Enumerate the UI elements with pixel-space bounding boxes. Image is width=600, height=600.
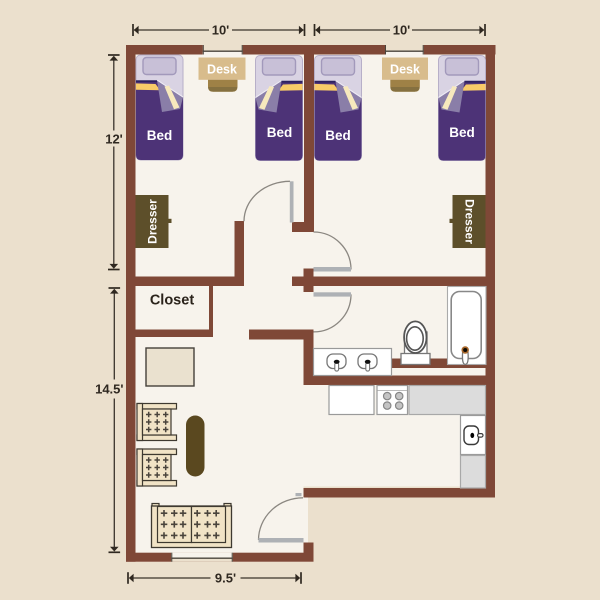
svg-text:Closet: Closet (150, 293, 194, 309)
svg-text:12': 12' (105, 131, 123, 146)
svg-text:10': 10' (212, 22, 230, 37)
svg-text:Bed: Bed (325, 128, 351, 143)
svg-text:Dresser: Dresser (462, 199, 476, 244)
svg-text:Bed: Bed (449, 125, 475, 140)
svg-text:14.5': 14.5' (95, 381, 123, 396)
svg-text:Dresser: Dresser (146, 199, 160, 244)
svg-text:Bed: Bed (147, 128, 173, 143)
svg-text:Desk: Desk (390, 62, 420, 76)
svg-text:Desk: Desk (207, 62, 237, 76)
svg-text:10': 10' (393, 22, 411, 37)
svg-text:9.5': 9.5' (215, 570, 236, 585)
svg-text:Bed: Bed (267, 125, 293, 140)
